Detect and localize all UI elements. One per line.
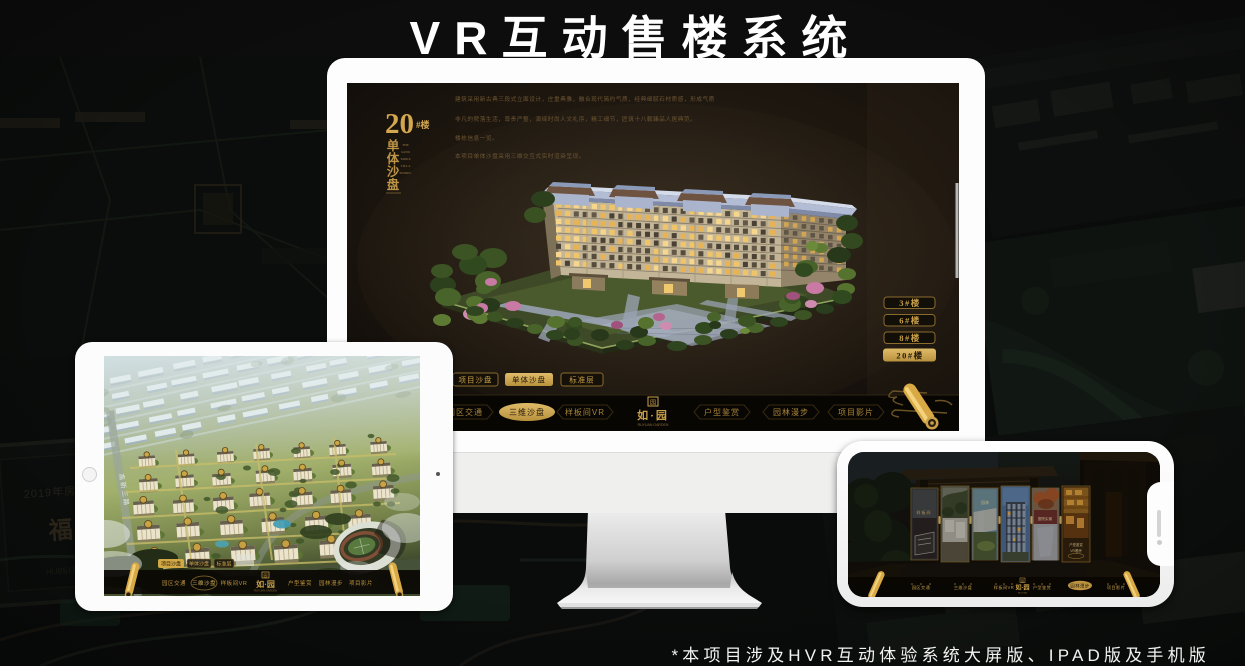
svg-text:三维沙盘: 三维沙盘 — [954, 584, 972, 591]
svg-text:园林漫步: 园林漫步 — [1070, 583, 1089, 590]
svg-text:项目影片: 项目影片 — [1107, 584, 1125, 591]
svg-text:沙: 沙 — [387, 165, 400, 179]
svg-text:三维沙盘: 三维沙盘 — [192, 579, 216, 587]
svg-text:样板间VR: 样板间VR — [994, 584, 1014, 591]
svg-text:园区交通: 园区交通 — [912, 584, 931, 591]
svg-text:标准层: 标准层 — [569, 375, 595, 385]
svg-text:8#楼: 8#楼 — [899, 333, 921, 343]
svg-text:户型鉴赏: 户型鉴赏 — [1033, 584, 1051, 591]
svg-text:RUYUAN: RUYUAN — [1018, 592, 1028, 595]
svg-text:如·园: 如·园 — [1015, 584, 1029, 592]
svg-text:户型鉴赏: 户型鉴赏 — [704, 407, 740, 417]
svg-text:TABLE: TABLE — [400, 157, 411, 161]
svg-text:园区交通: 园区交通 — [162, 579, 186, 587]
svg-text:样板间VR: 样板间VR — [565, 407, 605, 417]
svg-text:园: 园 — [264, 572, 268, 578]
svg-text:园: 园 — [650, 400, 656, 407]
svg-text:单: 单 — [387, 138, 400, 153]
svg-text:项目沙盘: 项目沙盘 — [459, 375, 493, 385]
svg-text:THE: THE — [402, 143, 409, 147]
svg-text:20: 20 — [385, 108, 414, 140]
svg-text:如·园: 如·园 — [256, 579, 275, 589]
svg-text:户型鉴赏: 户型鉴赏 — [288, 579, 312, 587]
svg-text:单体沙盘: 单体沙盘 — [512, 375, 546, 385]
svg-text:园: 园 — [1021, 578, 1024, 583]
svg-text:园林漫步: 园林漫步 — [773, 407, 809, 417]
svg-text:园林漫步: 园林漫步 — [319, 579, 343, 587]
svg-text:RUYUAN GARDEN: RUYUAN GARDEN — [254, 589, 277, 593]
svg-text:建筑采用新古典三段式立面设计，庄重典雅，融合现代简约气质，经: 建筑采用新古典三段式立面设计，庄重典雅，融合现代简约气质，经典细腻石材质感，形成… — [455, 95, 715, 103]
svg-text:样板间VR: 样板间VR — [221, 579, 248, 587]
svg-text:体: 体 — [387, 151, 400, 166]
svg-text:#楼: #楼 — [416, 119, 430, 130]
svg-text:单体沙盘: 单体沙盘 — [189, 561, 209, 568]
svg-text:6#楼: 6#楼 — [899, 316, 921, 326]
svg-text:RUYUAN GARDEN: RUYUAN GARDEN — [638, 423, 669, 427]
svg-text:3#楼: 3#楼 — [899, 298, 921, 308]
svg-text:20#楼: 20#楼 — [896, 351, 923, 361]
svg-text:项目影片: 项目影片 — [349, 579, 373, 587]
svg-text:VILLA: VILLA — [400, 164, 411, 168]
svg-text:三维沙盘: 三维沙盘 — [509, 407, 545, 417]
svg-text:项目沙盘: 项目沙盘 — [161, 561, 181, 568]
svg-text:项目影片: 项目影片 — [838, 407, 874, 417]
svg-text:标准层: 标准层 — [216, 561, 231, 568]
svg-text:如·园: 如·园 — [637, 408, 669, 422]
svg-text:SAND: SAND — [401, 150, 410, 154]
